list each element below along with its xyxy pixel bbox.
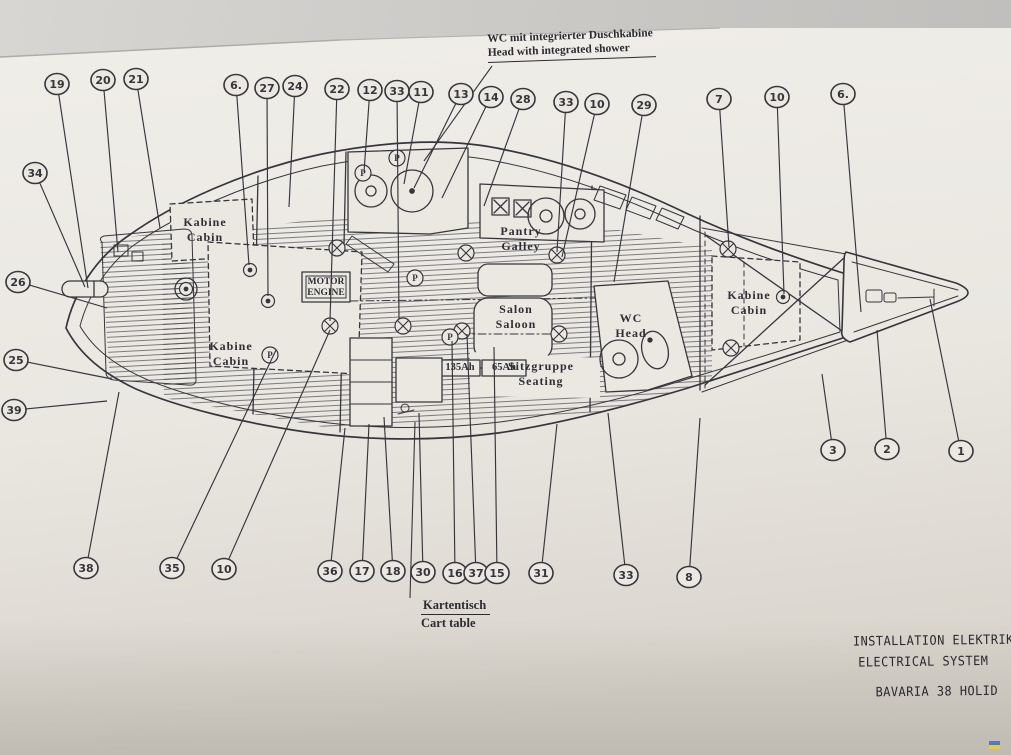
- callout-number: 37: [468, 567, 483, 580]
- lamp-symbol: [720, 241, 736, 257]
- callout-number: 6.: [837, 88, 849, 101]
- lamp-symbol: [395, 318, 411, 334]
- callout-number: 15: [489, 567, 504, 580]
- callout-number: 34: [27, 167, 43, 180]
- photo-shadow: [0, 620, 1011, 755]
- pump-symbol: P: [442, 329, 458, 345]
- spotlight-symbol: [262, 295, 275, 308]
- callout-number: 33: [389, 85, 404, 98]
- callout-number: 26: [10, 276, 26, 289]
- callout-number: 10: [589, 98, 605, 111]
- callout-number: 36: [322, 565, 338, 578]
- callout-number: 39: [6, 404, 21, 417]
- callout-number: 35: [164, 562, 179, 575]
- svg-text:P: P: [360, 168, 366, 178]
- callout-number: 24: [287, 80, 303, 93]
- callout-number: 19: [49, 78, 64, 91]
- pump-symbol: P: [355, 165, 371, 181]
- callout-number: 33: [618, 569, 633, 582]
- callout-number: 31: [533, 567, 548, 580]
- callout-number: 29: [636, 99, 651, 112]
- callout-number: 1: [957, 445, 965, 458]
- spotlight-symbol: [244, 264, 257, 277]
- callout-number: 13: [453, 88, 468, 101]
- callout-number: 6.: [230, 79, 242, 92]
- lamp-symbol: [723, 340, 739, 356]
- callout-number: 33: [558, 96, 573, 109]
- photographed-diagram-page: PPPPP1920216.272422123311131428331029710…: [0, 0, 1011, 755]
- callout-number: 22: [329, 83, 344, 96]
- callout-number: 7: [715, 93, 723, 106]
- pump-symbol: P: [262, 347, 278, 363]
- svg-text:P: P: [447, 332, 453, 342]
- boat-deck-plan: PPPPP1920216.272422123311131428331029710…: [0, 0, 1011, 755]
- callout-number: 16: [447, 567, 463, 580]
- callout-number: 30: [415, 566, 431, 579]
- callout-number: 28: [515, 93, 530, 106]
- callout-number: 2: [883, 443, 891, 456]
- lamp-symbol: [551, 326, 567, 342]
- spotlight-symbol: [180, 283, 193, 296]
- callout-number: 21: [128, 73, 143, 86]
- callout-number: 11: [413, 86, 428, 99]
- callout-number: 38: [78, 562, 93, 575]
- callout-number: 10: [216, 563, 232, 576]
- spotlight-symbol: [777, 291, 790, 304]
- callout-number: 10: [769, 91, 785, 104]
- callout-number: 12: [362, 84, 377, 97]
- callout-number: 18: [385, 565, 400, 578]
- callout-number: 3: [829, 444, 837, 457]
- pump-symbol: P: [407, 270, 423, 286]
- lamp-symbol: [458, 245, 474, 261]
- callout-number: 8: [685, 571, 693, 584]
- callout-number: 17: [354, 565, 369, 578]
- callout-number: 25: [8, 354, 23, 367]
- callout-number: 14: [483, 91, 499, 104]
- svg-text:P: P: [412, 273, 418, 283]
- callout-number: 27: [259, 82, 274, 95]
- lamp-symbol: [329, 240, 345, 256]
- callout-number: 20: [95, 74, 111, 87]
